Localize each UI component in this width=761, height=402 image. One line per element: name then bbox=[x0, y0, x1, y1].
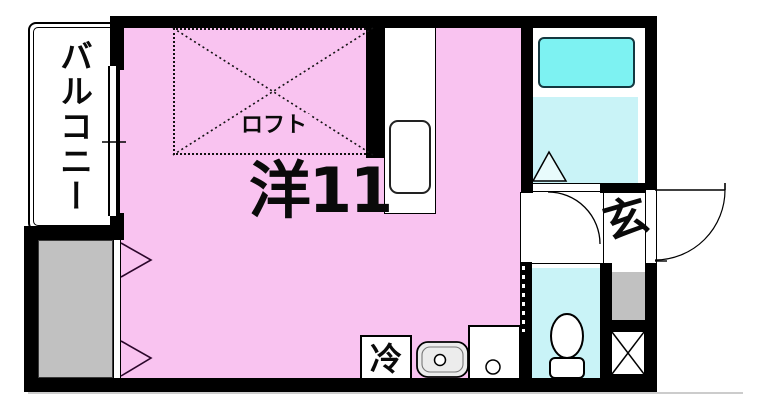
x-box-cross bbox=[612, 332, 644, 374]
closet-folding-doors bbox=[121, 243, 151, 376]
balcony-label-wrap: バルコニー bbox=[28, 24, 120, 229]
bathroom-triangle-marker bbox=[533, 152, 566, 181]
entrance-door bbox=[655, 183, 725, 261]
balcony-label: バルコニー bbox=[58, 39, 91, 214]
washbasin bbox=[417, 342, 468, 377]
main-room-label: 洋11 bbox=[240, 160, 400, 222]
loft-label: ロフト bbox=[238, 114, 310, 138]
washing-machine-drain bbox=[486, 360, 500, 374]
interior-door-arc bbox=[548, 192, 600, 244]
toilet bbox=[550, 314, 584, 378]
floor-plan: 冷 bbox=[0, 0, 761, 402]
